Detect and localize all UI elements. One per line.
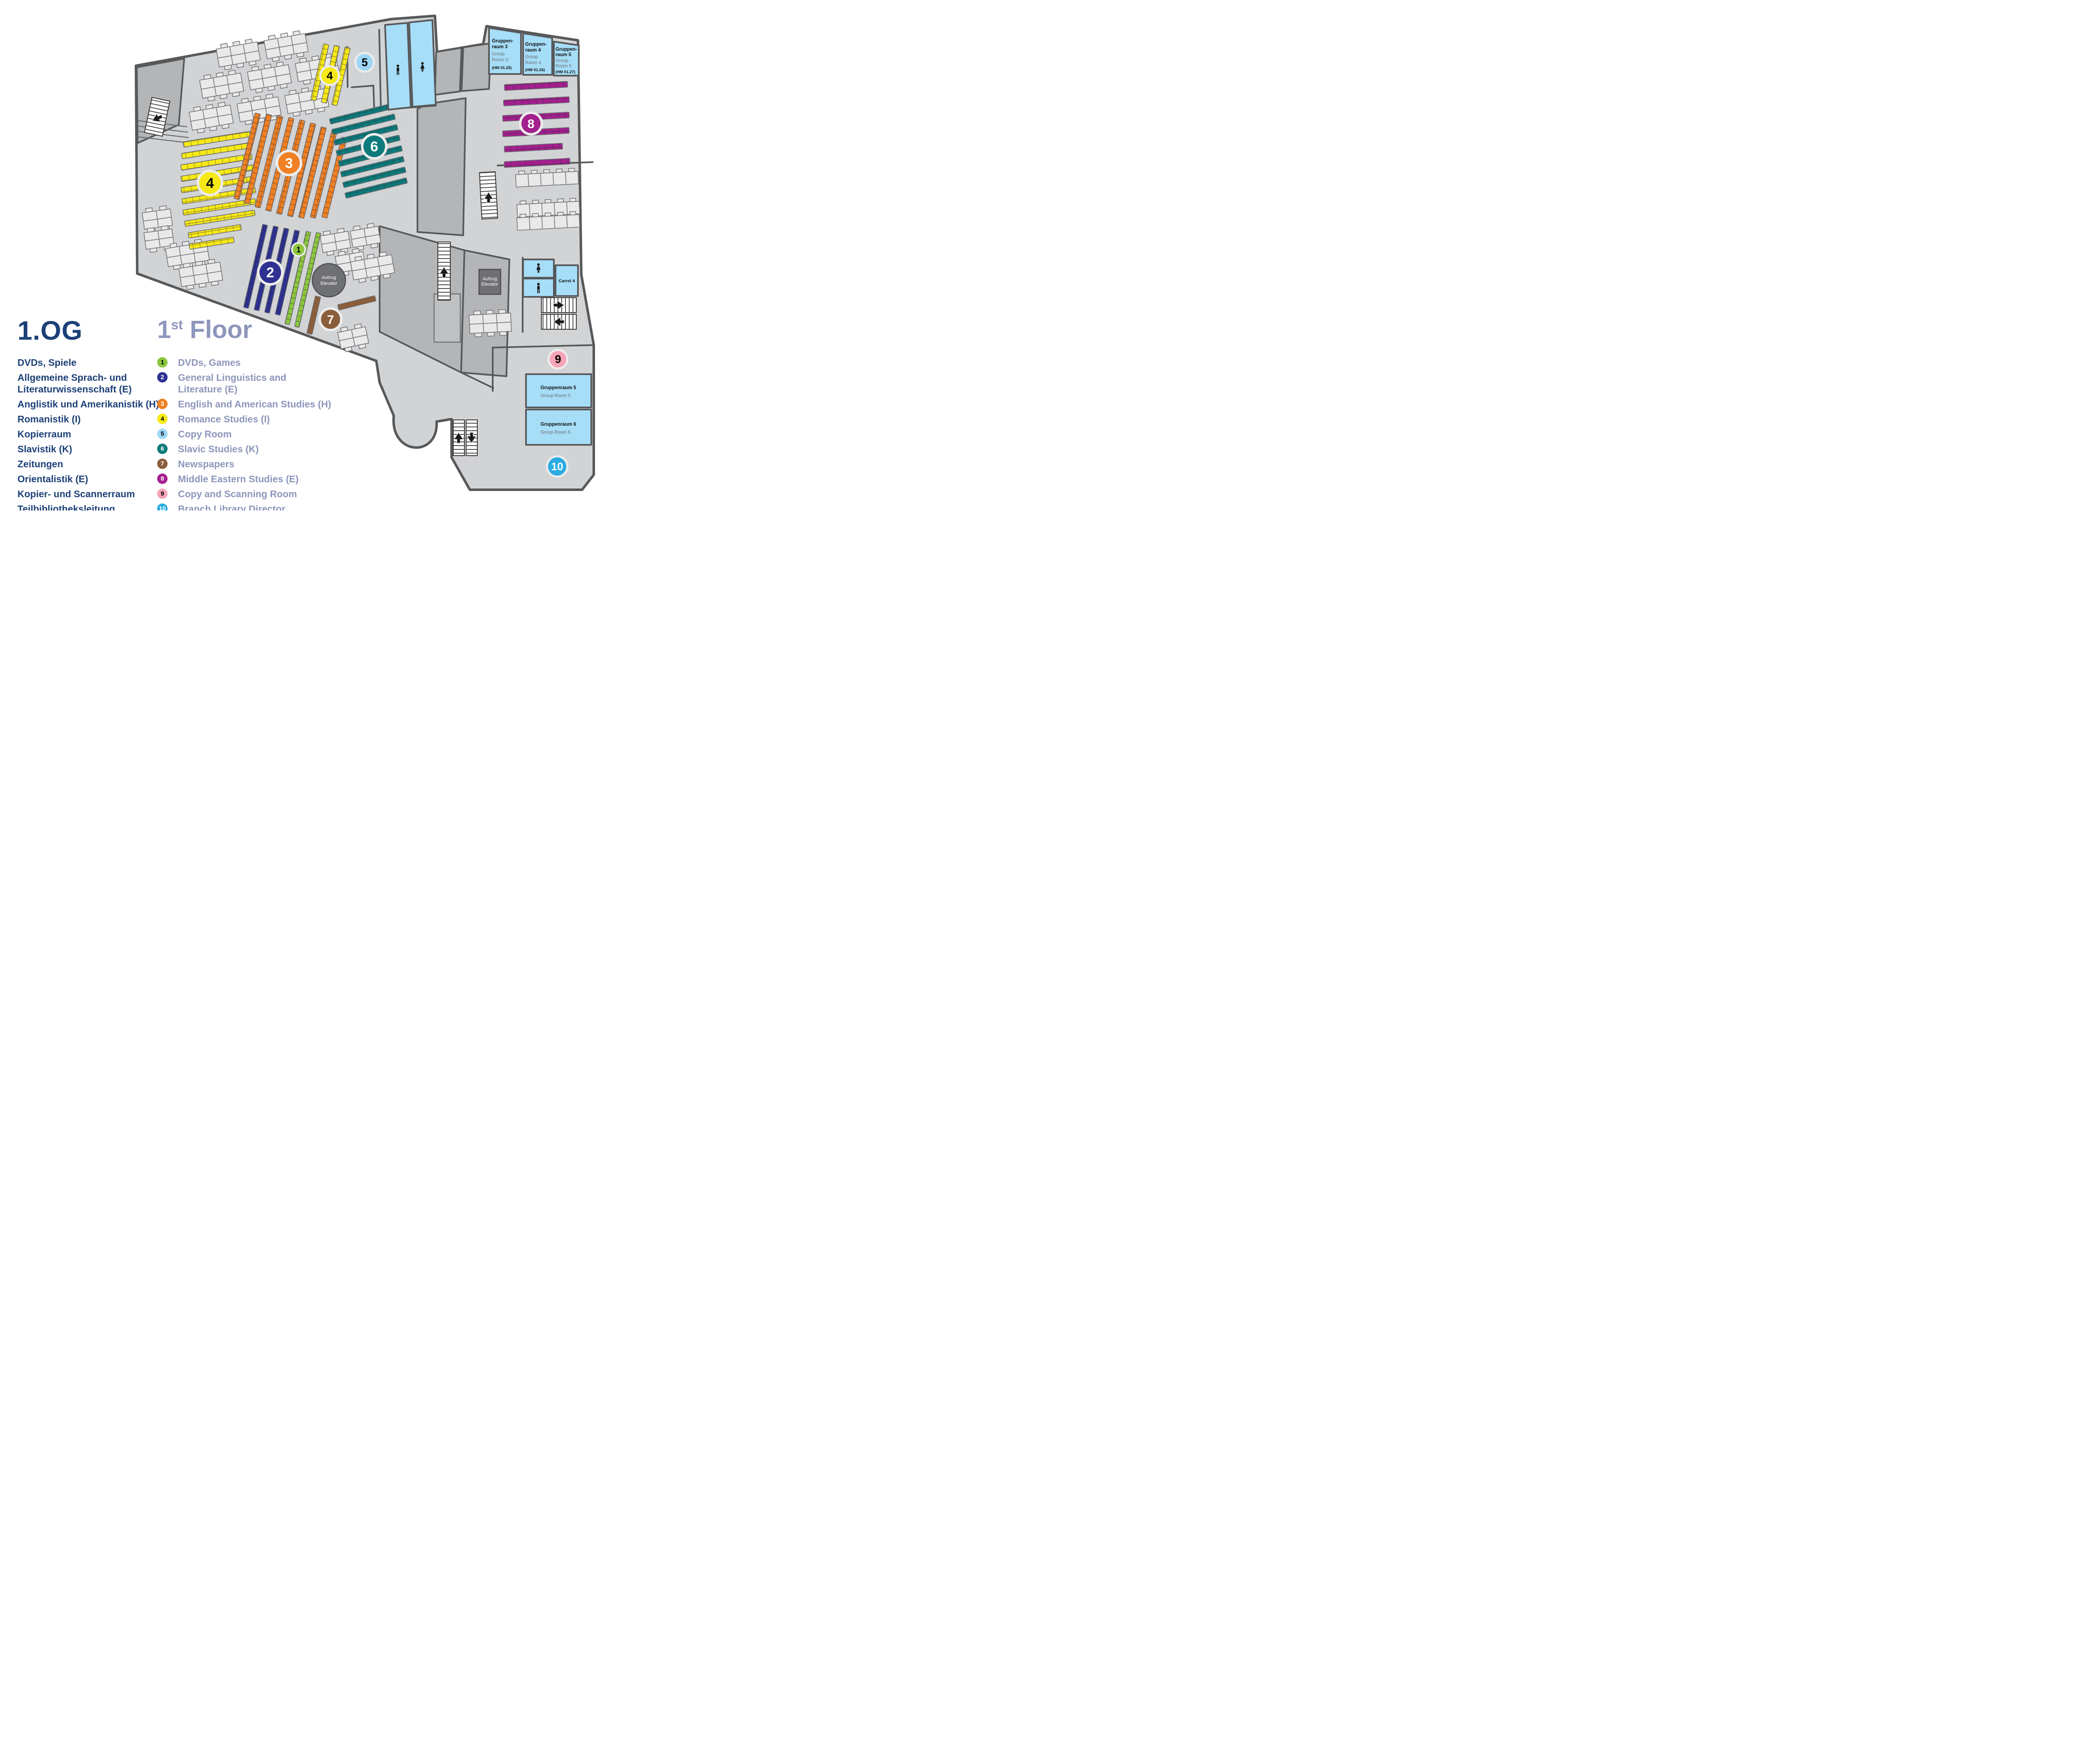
svg-text:Gruppen-: Gruppen- (492, 39, 514, 44)
legend-de-5: Kopierraum (17, 428, 157, 440)
floor-title-english: 1st Floor (157, 315, 483, 344)
marker-5: 5 (354, 52, 375, 73)
legend-en-10: Branch Library Director (175, 503, 483, 511)
marker-4-left: 4 (197, 170, 223, 196)
svg-text:(HM 01.26): (HM 01.26) (525, 68, 545, 72)
group-room-5-bottom (526, 374, 591, 407)
svg-text:Group: Group (525, 54, 538, 59)
legend-en-5: Copy Room (175, 428, 483, 440)
marker-8: 8 (519, 111, 543, 136)
legend-en-6: Slavic Studies (K) (175, 443, 483, 455)
service-room-b (462, 43, 491, 91)
legend-badge-8: 8 (157, 474, 168, 484)
svg-text:4: 4 (206, 175, 214, 191)
legend-en-9: Copy and Scanning Room (175, 488, 483, 500)
legend-en-2: General Linguistics andLiterature (E) (175, 372, 483, 395)
service-room-a (435, 48, 462, 95)
svg-text:4: 4 (326, 69, 333, 82)
svg-text:Elevator: Elevator (481, 282, 499, 287)
svg-text:Room 3: Room 3 (492, 57, 508, 62)
svg-text:Aufzug: Aufzug (483, 276, 497, 281)
svg-text:Gruppen-: Gruppen- (525, 42, 547, 47)
svg-text:(HM 01.27): (HM 01.27) (556, 70, 575, 74)
svg-text:1: 1 (296, 246, 301, 254)
marker-10: 10 (546, 455, 568, 478)
carrel-4-label: Carrel 4 (558, 279, 575, 284)
legend-badge-5: 5 (157, 429, 168, 439)
legend-badge-3: 3 (157, 399, 168, 409)
svg-text:Gruppenraum 6: Gruppenraum 6 (541, 422, 576, 427)
legend-en-3: English and American Studies (H) (175, 398, 483, 410)
legend-de-3: Anglistik und Amerikanistik (H) (17, 398, 157, 410)
svg-text:raum 4: raum 4 (525, 48, 541, 53)
legend-badge-2: 2 (157, 372, 168, 382)
legend-en-7: Newspapers (175, 458, 483, 470)
legend-de-6: Slavistik (K) (17, 443, 157, 455)
legend-de-9: Kopier- und Scannerraum (17, 488, 157, 500)
svg-text:Gruppen-: Gruppen- (556, 47, 577, 52)
legend-badge-9: 9 (157, 488, 168, 499)
svg-text:2: 2 (267, 265, 274, 281)
svg-text:Group Room 6: Group Room 6 (541, 430, 570, 435)
svg-text:10: 10 (551, 460, 563, 473)
legend-de-8: Orientalistik (E) (17, 473, 157, 485)
marker-3: 3 (276, 150, 302, 176)
svg-text:Gruppenraum 5: Gruppenraum 5 (541, 385, 576, 390)
legend-de-1: DVDs, Spiele (17, 357, 157, 368)
elevator-round: Aufzug Elevator (312, 264, 346, 297)
core-column-upper (417, 98, 466, 235)
legend-de-7: Zeitungen (17, 458, 157, 470)
svg-text:6: 6 (370, 139, 378, 155)
legend-de-4: Romanistik (I) (17, 413, 157, 425)
legend: 1.OG 1st Floor DVDs, Spiele 1 DVDs, Game… (17, 315, 483, 511)
group-room-6 (526, 410, 591, 445)
marker-6: 6 (361, 133, 388, 160)
marker-4-top: 4 (319, 65, 340, 86)
legend-de-2: Allgemeine Sprach- undLiteraturwissensch… (17, 372, 157, 395)
marker-1: 1 (291, 242, 306, 257)
legend-badge-10: 10 (157, 503, 168, 511)
legend-badge-4: 4 (157, 414, 168, 424)
legend-de-10: Teilbibliotheksleitung (17, 503, 157, 511)
svg-text:3: 3 (285, 155, 293, 171)
svg-text:(HM 01.25): (HM 01.25) (492, 66, 512, 70)
marker-2: 2 (257, 259, 284, 286)
svg-text:9: 9 (555, 353, 561, 365)
legend-en-1: DVDs, Games (175, 357, 483, 368)
svg-text:8: 8 (528, 117, 535, 131)
svg-text:Room 4: Room 4 (525, 60, 541, 65)
elevator-box: Aufzug Elevator (479, 269, 501, 294)
floor-plan-page: Gruppen- raum 3 Group Room 3 (HM 01.25) … (0, 0, 652, 511)
svg-text:Group Room 5: Group Room 5 (541, 393, 570, 398)
svg-text:Group: Group (556, 58, 568, 63)
svg-text:Aufzug: Aufzug (322, 275, 336, 280)
legend-en-8: Middle Eastern Studies (E) (175, 473, 483, 485)
marker-9: 9 (548, 349, 568, 370)
svg-text:raum 3: raum 3 (492, 44, 508, 49)
svg-text:Elevator: Elevator (321, 281, 338, 286)
legend-en-4: Romance Studies (I) (175, 413, 483, 425)
svg-text:5: 5 (361, 56, 368, 69)
legend-badge-1: 1 (157, 357, 168, 368)
svg-text:raum 5: raum 5 (556, 52, 571, 57)
svg-text:Room 5: Room 5 (556, 64, 572, 69)
legend-badge-6: 6 (157, 444, 168, 454)
svg-text:Group: Group (492, 52, 505, 57)
floor-title-german: 1.OG (17, 315, 157, 346)
legend-badge-7: 7 (157, 459, 168, 469)
